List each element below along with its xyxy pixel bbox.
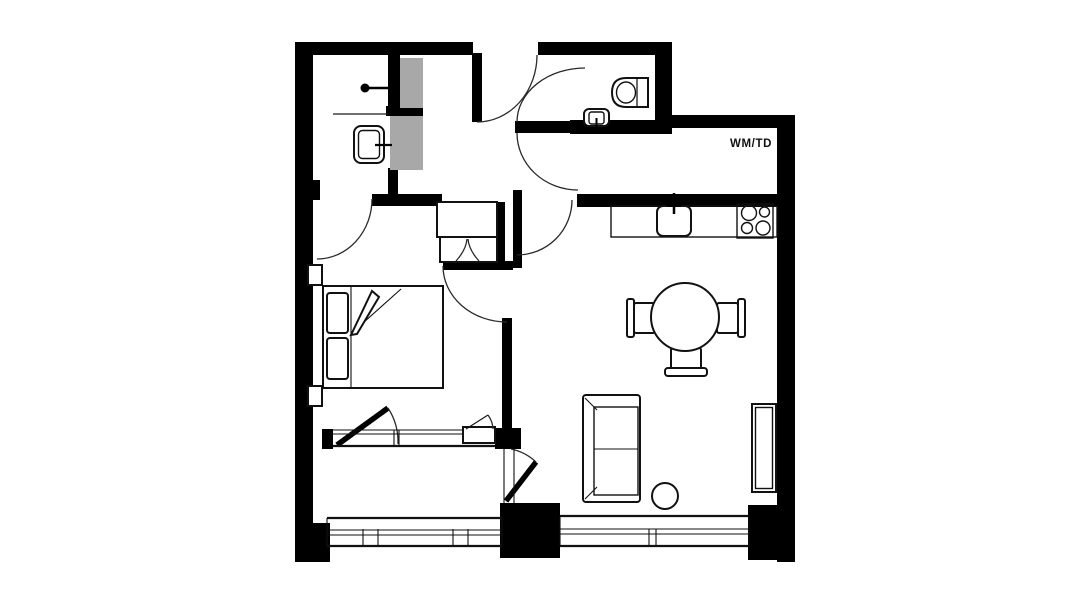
wall-node-bottom-mid [500,503,560,558]
wall-shaft-stub [388,168,398,194]
shaft-lower [390,116,423,170]
wall-corner-bottom-left [295,523,330,562]
bedroom-door-arc [443,266,507,322]
shaft-upper [400,58,423,108]
wall-balcony-band-stub [322,429,333,449]
dining-table-icon [651,283,719,351]
wall-node-bottom-right [748,505,795,560]
chair-left-back [627,299,634,337]
wm-td-label: WM/TD [730,138,772,150]
wall-top-right [672,115,795,128]
wall-shower-right [388,55,400,107]
burner-1 [742,206,757,221]
bedroom-balcony-band [333,415,495,446]
wall-niche-lower [308,386,322,406]
wall-ensuite-jamb [310,180,320,200]
closet-body [437,202,497,237]
entrance-door-leaf [472,53,482,122]
wardrobe-closet [437,202,497,262]
ensuite-room [333,84,392,164]
wc-room [584,78,648,127]
balcony-bedroom-door-leaf [337,408,388,445]
wall-node-mid [495,428,521,449]
floorplan-page: WM/TD [0,0,1092,614]
wc-door-arc [517,68,585,122]
wall-closet-right [497,202,505,262]
entrance-door-arc [477,55,537,122]
wall-kitchen-top [577,194,795,207]
living-room [583,395,776,509]
utility-door-arc [517,133,578,190]
living-window [560,516,749,546]
bedroom [308,265,443,406]
floorplan-drawing: WM/TD [0,0,1092,614]
side-table-icon [652,483,678,509]
balcony-bedroom-door-arc [388,408,398,444]
dining-set [627,283,745,376]
chair-bottom-back [665,368,707,376]
wall-bedroom-living [502,318,512,430]
burner-4 [756,221,770,235]
chair-right-seat [717,303,738,333]
pillow-bottom [327,338,348,379]
burner-3 [742,223,753,234]
wall-wc-top [538,42,672,55]
burner-2 [760,207,770,217]
wall-hall-stub [513,190,522,268]
window-sill-box [463,427,495,443]
balcony-living-door-leaf [506,462,536,501]
wc-door-leaf [515,121,572,133]
wall-top-left [295,42,473,55]
chair-right-back [738,299,745,337]
ensuite-door-arc [317,199,372,259]
balcony-living-door-arc [511,449,536,462]
wall-right-outer [777,115,795,562]
balcony-railing [327,518,502,546]
living-door-arc [517,200,572,255]
kitchen-counter [611,206,777,237]
wall-niche-upper [308,265,322,285]
wall-bedroom-top [372,194,442,206]
pillow-top [327,293,348,333]
wall-wc-right [655,42,672,133]
